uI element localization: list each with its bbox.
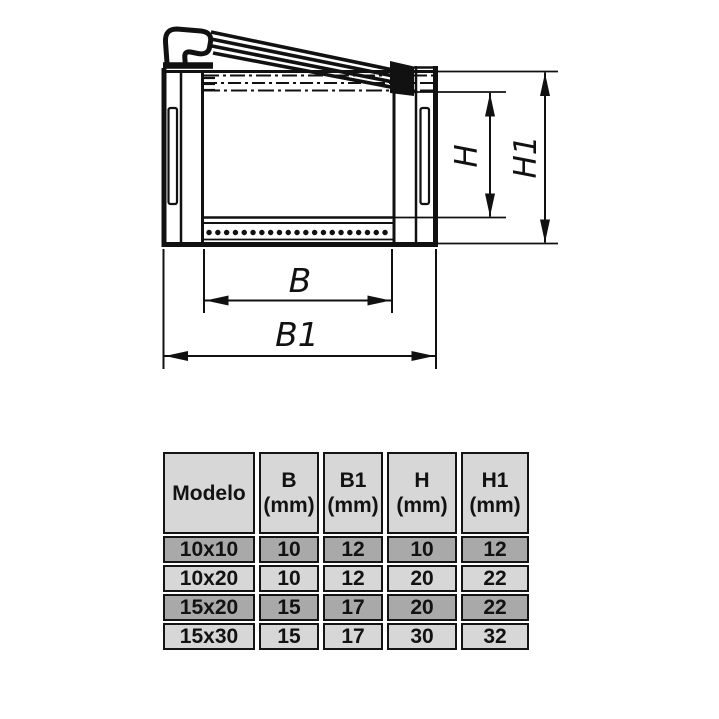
table-cell: 15: [259, 594, 319, 621]
dimension-b: B: [204, 249, 392, 313]
table-cell: 20: [387, 594, 457, 621]
table-row: 10x10 10 12 10 12: [163, 536, 529, 563]
header-label: B1: [325, 468, 381, 493]
table-cell: 10: [259, 536, 319, 563]
table-row: 15x30 15 17 30 32: [163, 623, 529, 650]
table-cell: 10: [387, 536, 457, 563]
dimension-h: H: [394, 92, 506, 218]
header-modelo: Modelo: [163, 452, 255, 534]
table-cell: 15x20: [163, 594, 255, 621]
header-label: H: [389, 468, 455, 493]
header-h1: H1 (mm): [461, 452, 529, 534]
header-unit: (mm): [463, 493, 527, 518]
table-cell: 12: [323, 565, 383, 592]
dim-label-b1: B1: [275, 315, 319, 354]
page: H H1 B B1: [0, 0, 719, 719]
table-cell: 30: [387, 623, 457, 650]
table-cell: 17: [323, 623, 383, 650]
table-cell: 10x10: [163, 536, 255, 563]
left-wall-slot: [169, 108, 178, 204]
table-cell: 10: [259, 565, 319, 592]
table-cell: 22: [461, 565, 529, 592]
table-cell: 12: [461, 536, 529, 563]
table-cell: 10x20: [163, 565, 255, 592]
right-wall-slot: [421, 108, 430, 204]
dim-label-h: H: [449, 144, 485, 167]
table-cell: 15x30: [163, 623, 255, 650]
header-label: B: [261, 468, 317, 493]
table-cell: 15: [259, 623, 319, 650]
table-header-row: Modelo B (mm) B1 (mm) H (mm) H1 (mm): [163, 452, 529, 534]
header-label: H1: [463, 468, 527, 493]
adhesive-strip: [203, 218, 395, 240]
header-unit: (mm): [389, 493, 455, 518]
header-h: H (mm): [387, 452, 457, 534]
technical-drawing: H H1 B B1: [0, 0, 719, 440]
table-cell: 20: [387, 565, 457, 592]
header-b1: B1 (mm): [323, 452, 383, 534]
table-cell: 17: [323, 594, 383, 621]
dimensions-table: Modelo B (mm) B1 (mm) H (mm) H1 (mm): [159, 450, 533, 652]
header-label: Modelo: [165, 481, 253, 506]
dim-label-h1: H1: [508, 135, 544, 178]
lid-hinge-hook: [165, 29, 210, 63]
table-row: 10x20 10 12 20 22: [163, 565, 529, 592]
header-b: B (mm): [259, 452, 319, 534]
header-unit: (mm): [261, 493, 317, 518]
table-row: 15x20 15 17 20 22: [163, 594, 529, 621]
table-cell: 12: [323, 536, 383, 563]
header-unit: (mm): [325, 493, 381, 518]
dim-label-b: B: [289, 261, 312, 300]
table-cell: 22: [461, 594, 529, 621]
table-cell: 32: [461, 623, 529, 650]
